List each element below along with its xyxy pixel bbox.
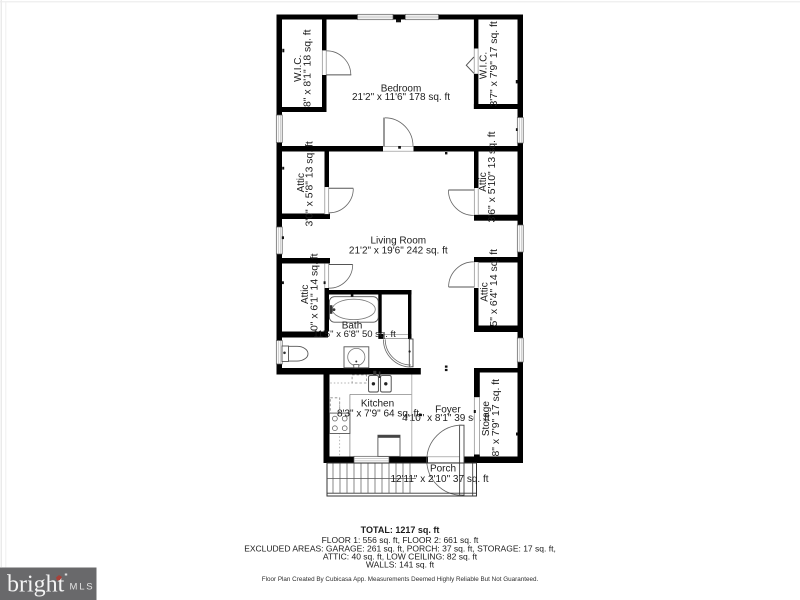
svg-text:3'0" x 5'8" 13 sq. ft: 3'0" x 5'8" 13 sq. ft <box>305 141 316 226</box>
svg-text:21'2" x 11'6" 178 sq. ft: 21'2" x 11'6" 178 sq. ft <box>352 92 450 103</box>
svg-text:Floor Plan Created By Cubicasa: Floor Plan Created By Cubicasa App. Meas… <box>262 576 539 583</box>
svg-text:3'6" x 5'10" 13 sq. ft: 3'6" x 5'10" 13 sq. ft <box>487 131 498 222</box>
svg-text:TOTAL: 1217 sq. ft: TOTAL: 1217 sq. ft <box>361 525 440 535</box>
svg-text:W.I.C.: W.I.C. <box>479 52 490 79</box>
svg-text:8" x 8'1" 18 sq. ft: 8" x 8'1" 18 sq. ft <box>303 29 314 107</box>
svg-text:12'11" x 2'10" 37 sq. ft: 12'11" x 2'10" 37 sq. ft <box>390 474 488 485</box>
svg-text:0" x 6'1" 14 sq. ft: 0" x 6'1" 14 sq. ft <box>310 253 321 331</box>
svg-text:3'7" x 7'9" 17 sq. ft: 3'7" x 7'9" 17 sq. ft <box>489 21 500 106</box>
svg-text:Foyer: Foyer <box>435 405 461 416</box>
svg-text:MLS: MLS <box>70 582 95 593</box>
svg-text:bright: bright <box>7 572 65 598</box>
svg-text:8" x 7'9" 17 sq. ft: 8" x 7'9" 17 sq. ft <box>491 379 502 457</box>
svg-text:Porch: Porch <box>430 464 456 475</box>
svg-text:11'5" x 6'8" 50 sq. ft: 11'5" x 6'8" 50 sq. ft <box>313 329 396 340</box>
svg-text:8'3" x 7'9" 64 sq. ft: 8'3" x 7'9" 64 sq. ft <box>337 409 419 420</box>
svg-text:5" x 6'4" 14 sq. ft: 5" x 6'4" 14 sq. ft <box>489 249 500 327</box>
svg-text:WALLS: 141 sq. ft: WALLS: 141 sq. ft <box>366 560 435 570</box>
svg-text:21'2" x 19'6" 242 sq. ft: 21'2" x 19'6" 242 sq. ft <box>349 246 448 257</box>
